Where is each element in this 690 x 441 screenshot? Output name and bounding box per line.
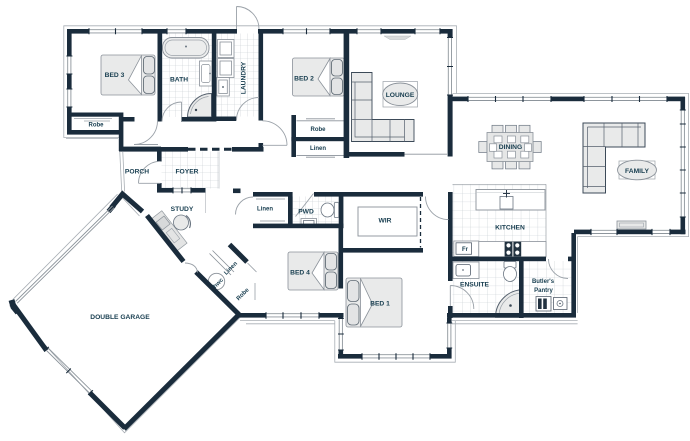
svg-text:FAMILY: FAMILY: [625, 168, 649, 175]
svg-text:ENSUITE: ENSUITE: [460, 282, 490, 289]
svg-text:BED 1: BED 1: [370, 301, 390, 308]
svg-text:BATH: BATH: [170, 77, 188, 84]
svg-text:Fr: Fr: [462, 247, 469, 253]
svg-text:BED 2: BED 2: [294, 76, 314, 83]
svg-text:STUDY: STUDY: [171, 206, 194, 213]
svg-text:DINING: DINING: [499, 144, 522, 151]
svg-text:WIR: WIR: [379, 218, 392, 225]
svg-text:Robe: Robe: [89, 123, 105, 129]
svg-text:Pantry: Pantry: [534, 288, 553, 294]
svg-text:Linen: Linen: [310, 146, 326, 152]
svg-text:BED 3: BED 3: [105, 72, 125, 79]
svg-text:DOUBLE GARAGE: DOUBLE GARAGE: [90, 314, 150, 321]
svg-text:PORCH: PORCH: [125, 169, 149, 176]
svg-text:Linen: Linen: [257, 207, 273, 213]
svg-text:PWD: PWD: [298, 209, 314, 216]
svg-text:FOYER: FOYER: [175, 169, 198, 176]
svg-text:LAUNDRY: LAUNDRY: [241, 61, 248, 94]
svg-text:Butler's: Butler's: [532, 279, 555, 285]
svg-text:BED 4: BED 4: [290, 270, 310, 277]
svg-text:KITCHEN: KITCHEN: [495, 225, 525, 232]
svg-text:LOUNGE: LOUNGE: [386, 92, 415, 99]
svg-text:Robe: Robe: [311, 127, 327, 133]
